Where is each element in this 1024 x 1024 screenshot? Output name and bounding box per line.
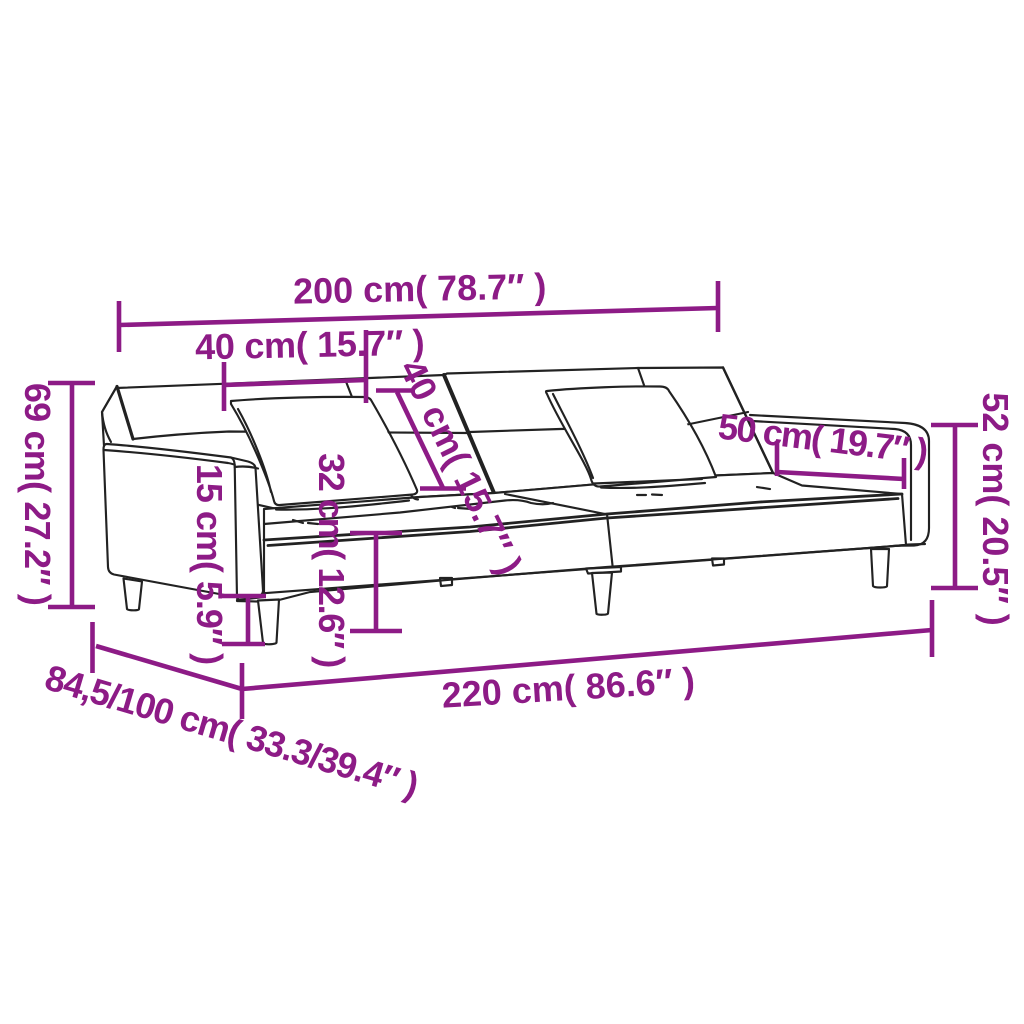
svg-text:200 cm( 78.7″ ): 200 cm( 78.7″ ) — [293, 265, 547, 311]
svg-text:15 cm( 5.9″ ): 15 cm( 5.9″ ) — [189, 464, 230, 664]
svg-text:69 cm( 27.2″ ): 69 cm( 27.2″ ) — [17, 383, 58, 605]
svg-text:32 cm( 12.6″ ): 32 cm( 12.6″ ) — [311, 453, 352, 667]
svg-text:52 cm( 20.5″ ): 52 cm( 20.5″ ) — [975, 392, 1016, 625]
svg-text:40 cm( 15.7″ ): 40 cm( 15.7″ ) — [195, 322, 425, 368]
